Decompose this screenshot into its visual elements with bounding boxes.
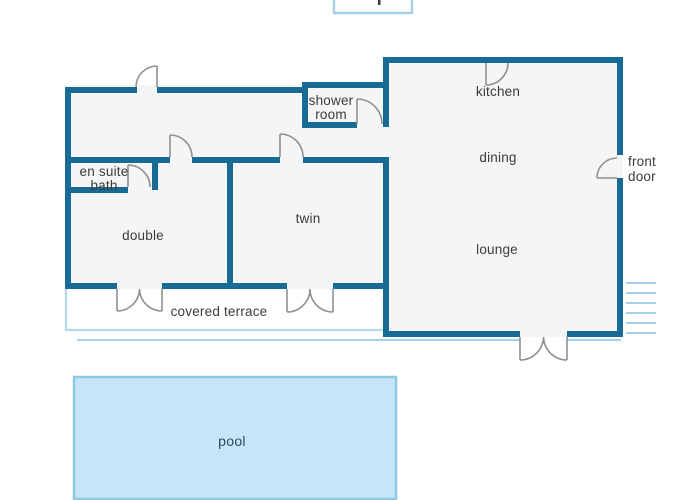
cropped-label-box (334, 0, 412, 13)
covered-terrace-label: covered terrace (171, 304, 268, 319)
front-door-label-line1: front (628, 154, 656, 169)
dining-label: dining (479, 150, 516, 165)
cropped-text-fragment (378, 0, 381, 5)
floor-plan-svg: pool kitchen dining lounge twin double s… (0, 0, 700, 500)
cropped-top-box (334, 0, 412, 13)
pool-label: pool (218, 433, 246, 449)
pool: pool (74, 377, 396, 499)
shower-room-label-line2: room (315, 107, 347, 122)
steps (626, 283, 656, 333)
double-label: double (122, 228, 164, 243)
kitchen-label: kitchen (476, 84, 520, 99)
floor-plan-page: pool kitchen dining lounge twin double s… (0, 0, 700, 500)
en-suite-label-line1: en suite (80, 164, 129, 179)
double-terrace-doors-arc (117, 289, 162, 311)
lounge-label: lounge (476, 242, 518, 257)
hall-exterior-door-arc (136, 66, 157, 87)
lounge-terrace-doors-arc (520, 337, 567, 360)
front-door-label-line2: door (628, 169, 656, 184)
twin-terrace-doors-arc (287, 289, 333, 312)
en-suite-label-line2: bath (90, 178, 117, 193)
right-wing-floor (383, 57, 623, 337)
shower-room-label-line1: shower (309, 93, 354, 108)
twin-label: twin (296, 211, 321, 226)
